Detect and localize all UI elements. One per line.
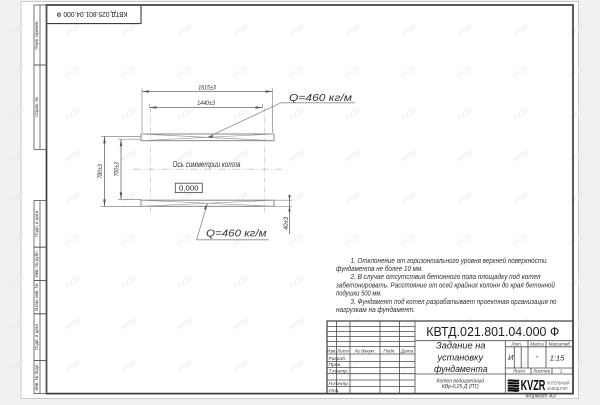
svg-text:фундамента: фундамента xyxy=(434,364,488,374)
svg-text:установку: установку xyxy=(437,353,485,363)
svg-text:Листов: Листов xyxy=(532,369,550,374)
svg-text:нагрузкам на фундамент.: нагрузкам на фундамент. xyxy=(336,305,415,314)
svg-text:Разраб.: Разраб. xyxy=(329,356,347,362)
svg-text:ЗАВОД РЭП: ЗАВОД РЭП xyxy=(547,386,568,391)
svg-text:КВТД.021.801.04.000 Ф: КВТД.021.801.04.000 Ф xyxy=(426,324,559,339)
svg-text:Взам. инв. №: Взам. инв. № xyxy=(34,283,39,310)
svg-text:Подп. и дата: Подп. и дата xyxy=(34,210,39,236)
svg-text:Пров.: Пров. xyxy=(329,362,342,368)
svg-text:Изм.: Изм. xyxy=(327,349,337,354)
svg-text:Подп.: Подп. xyxy=(383,349,395,354)
svg-text:Инв. № дубл.: Инв. № дубл. xyxy=(34,250,39,277)
svg-text:Справ. №: Справ. № xyxy=(34,97,39,117)
svg-text:№ докум.: № докум. xyxy=(355,349,375,354)
svg-text:Масса: Масса xyxy=(530,342,544,347)
svg-text:Н.контр.: Н.контр. xyxy=(329,381,350,387)
svg-text:КВр-0,25 Д (ПТ): КВр-0,25 Д (ПТ) xyxy=(442,384,479,390)
svg-text:1:15: 1:15 xyxy=(550,353,565,362)
svg-text:Ось симметрии котла: Ось симметрии котла xyxy=(173,159,241,169)
svg-text:700±3: 700±3 xyxy=(113,162,120,177)
svg-text:Масштаб: Масштаб xyxy=(549,342,571,347)
svg-text:1: 1 xyxy=(560,369,563,374)
svg-text:Q=460 кг/м: Q=460 кг/м xyxy=(289,92,352,104)
svg-text:Дата: Дата xyxy=(400,349,414,354)
svg-text:KVZR: KVZR xyxy=(521,378,546,394)
svg-text:И: И xyxy=(508,353,514,362)
svg-text:Лист: Лист xyxy=(336,349,349,354)
svg-text:Q=460 кг/м: Q=460 кг/м xyxy=(206,227,267,239)
svg-text:40±3: 40±3 xyxy=(283,217,290,230)
svg-text:Формат А3: Формат А3 xyxy=(525,394,556,400)
svg-text:Лит.: Лит. xyxy=(510,342,522,347)
svg-text:КОТЕЛЬНЫЙ: КОТЕЛЬНЫЙ xyxy=(547,380,570,385)
svg-text:Утв.: Утв. xyxy=(329,388,340,394)
svg-text:1440±3: 1440±3 xyxy=(197,100,215,107)
svg-text:Лист: Лист xyxy=(512,369,525,374)
svg-text:Т.контр.: Т.контр. xyxy=(329,368,349,374)
svg-text:1615±3: 1615±3 xyxy=(198,84,216,91)
svg-text:Задание на: Задание на xyxy=(436,341,486,351)
svg-text:Инв. № подл.: Инв. № подл. xyxy=(34,363,39,390)
svg-text:Подп. и дата: Подп. и дата xyxy=(34,324,39,350)
svg-text:0,000: 0,000 xyxy=(179,184,199,193)
svg-text:Перв. примен.: Перв. примен. xyxy=(34,20,39,49)
svg-text:КВТД.025.801.04.000 Ф: КВТД.025.801.04.000 Ф xyxy=(56,10,127,19)
svg-text:780±3: 780±3 xyxy=(97,164,104,179)
